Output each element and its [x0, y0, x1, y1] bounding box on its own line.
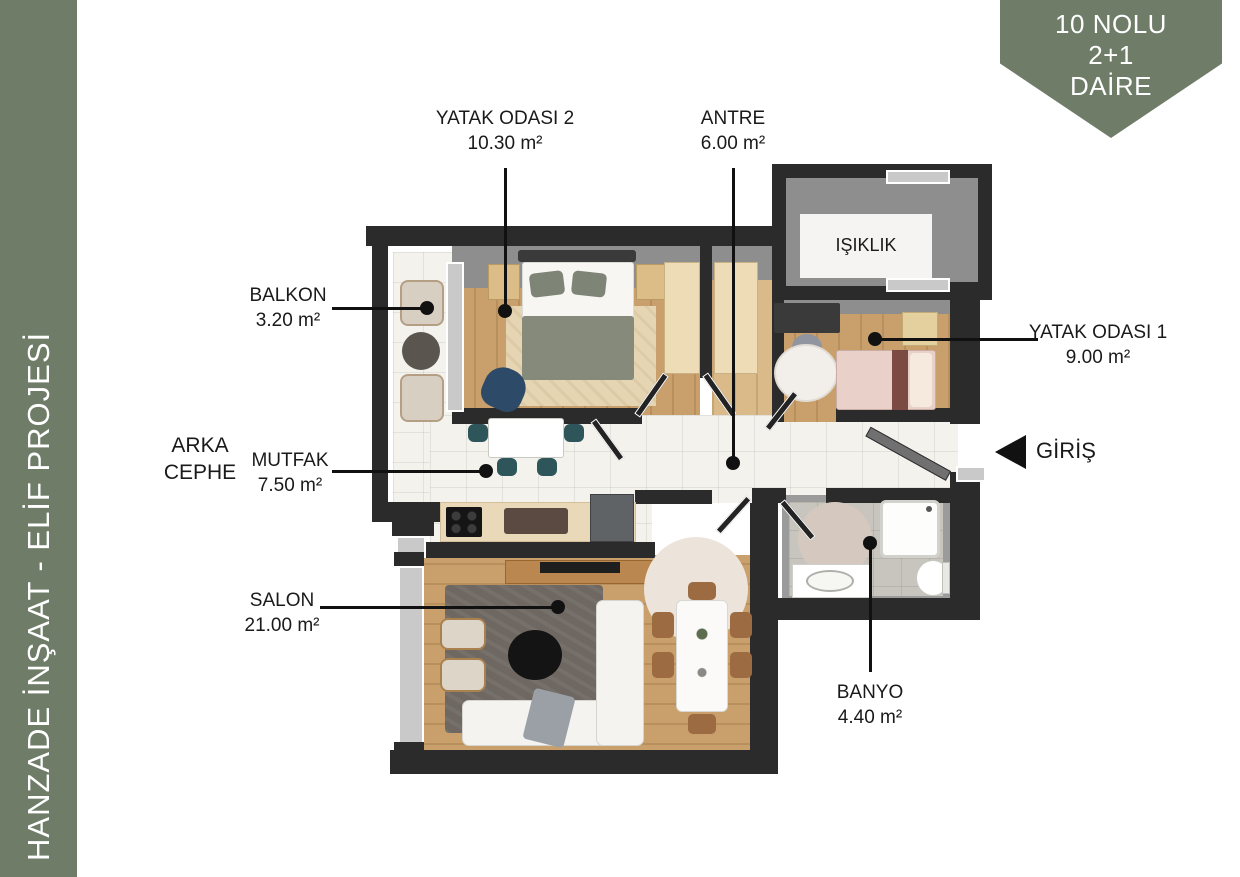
wall-bath-bottom	[772, 598, 980, 620]
leader-salon	[320, 606, 558, 609]
room-area: 4.40 m²	[810, 705, 930, 730]
leader-dot-yatak-odasi-2	[498, 304, 512, 318]
wall-bottom	[390, 750, 778, 774]
room-area: 3.20 m²	[228, 308, 348, 333]
fridge	[590, 494, 634, 542]
wall-left-balcony	[372, 246, 388, 518]
room-area: 9.00 m²	[1013, 345, 1183, 370]
lightwell-label: IŞIKLIK	[800, 233, 932, 258]
dining-chair-1	[652, 612, 674, 638]
dining-table	[676, 600, 728, 712]
label-mutfak: MUTFAK 7.50 m²	[230, 448, 350, 498]
room-area: 7.50 m²	[230, 473, 350, 498]
leader-dot-balkon	[420, 301, 434, 315]
wall-bedroom2-right	[700, 246, 712, 378]
salon-window-cap-bottom	[394, 742, 424, 758]
balcony-sliding-door	[446, 262, 464, 412]
sofa-right	[596, 600, 644, 746]
leader-yatak-odasi-2	[504, 168, 507, 310]
bathroom-basin	[806, 570, 854, 592]
label-yatak-odasi-2: YATAK ODASI 2 10.30 m²	[420, 106, 590, 156]
kitchen-chair-1	[468, 424, 488, 442]
label-salon: SALON 21.00 m²	[222, 588, 342, 638]
lightwell-window-bottom	[886, 278, 950, 292]
label-balkon: BALKON 3.20 m²	[228, 283, 348, 333]
label-banyo: BANYO 4.40 m²	[810, 680, 930, 730]
dining-chair-head	[688, 582, 716, 600]
salon-armchair-top	[440, 618, 486, 650]
bedroom2-wardrobe	[664, 262, 700, 374]
cooktop	[446, 507, 482, 537]
leader-dot-yatak-odasi-1	[868, 332, 882, 346]
bedroom2-pillow-left	[529, 270, 566, 298]
leader-balkon	[332, 307, 428, 310]
wall-bedroom1-bottom	[836, 408, 956, 422]
hall-cabinet	[714, 262, 758, 374]
bedroom2-pillow-right	[571, 270, 607, 297]
entrance-step	[956, 466, 986, 482]
room-title: ANTRE	[673, 106, 793, 131]
shower-drain	[926, 506, 932, 512]
dining-chair-4	[730, 652, 752, 678]
room-title: SALON	[222, 588, 342, 613]
bedroom2-headboard	[518, 250, 636, 262]
leader-mutfak	[332, 470, 487, 473]
bedroom1-desk	[774, 303, 840, 333]
entrance-arrow-icon	[995, 435, 1026, 469]
label-giris: GİRİŞ	[1036, 438, 1096, 463]
wall-hall-salon	[635, 490, 712, 504]
room-area: 10.30 m²	[420, 131, 590, 156]
kitchen-chair-4	[537, 458, 557, 476]
room-area: 6.00 m²	[673, 131, 793, 156]
tv	[540, 562, 620, 573]
label-yatak-odasi-1: YATAK ODASI 1 9.00 m²	[1013, 320, 1183, 370]
dining-chair-3	[730, 612, 752, 638]
room-area: 21.00 m²	[222, 613, 342, 638]
lightwell-window-top	[886, 170, 950, 184]
toilet-tank	[942, 562, 950, 594]
leader-dot-banyo	[863, 536, 877, 550]
balcony-side-table	[402, 332, 440, 370]
bedroom2-blanket	[522, 316, 634, 380]
bedroom1-pillow	[910, 353, 932, 407]
bedroom1-nightstand	[902, 312, 938, 346]
wall-salon-right	[750, 503, 778, 769]
wall-right-upper	[950, 282, 980, 424]
bedroom1-rug	[774, 344, 838, 402]
salon-window	[398, 566, 424, 746]
kitchen-chair-2	[564, 424, 584, 442]
balcony-armchair-bottom	[400, 374, 444, 422]
label-antre: ANTRE 6.00 m²	[673, 106, 793, 156]
kitchen-table	[488, 418, 564, 458]
kitchen-chair-3	[497, 458, 517, 476]
kitchen-window-cap-top	[392, 522, 434, 536]
coffee-table	[508, 630, 562, 680]
leader-dot-antre	[726, 456, 740, 470]
leader-yatak-odasi-1	[875, 338, 1038, 341]
wall-kitchen-bottom	[425, 542, 655, 558]
leader-antre	[732, 168, 735, 463]
wall-bath-top-left	[752, 488, 786, 503]
leader-dot-mutfak	[479, 464, 493, 478]
dining-chair-foot	[688, 714, 716, 734]
dining-chair-2	[652, 652, 674, 678]
bedroom1-bed-runner	[892, 350, 908, 410]
kitchen-sink	[504, 508, 568, 534]
room-title: BALKON	[228, 283, 348, 308]
room-title: YATAK ODASI 1	[1013, 320, 1183, 345]
room-title: BANYO	[810, 680, 930, 705]
room-title: YATAK ODASI 2	[420, 106, 590, 131]
salon-armchair-bottom	[440, 658, 486, 692]
leader-banyo	[869, 542, 872, 672]
salon-window-cap-top	[394, 552, 424, 566]
leader-dot-salon	[551, 600, 565, 614]
